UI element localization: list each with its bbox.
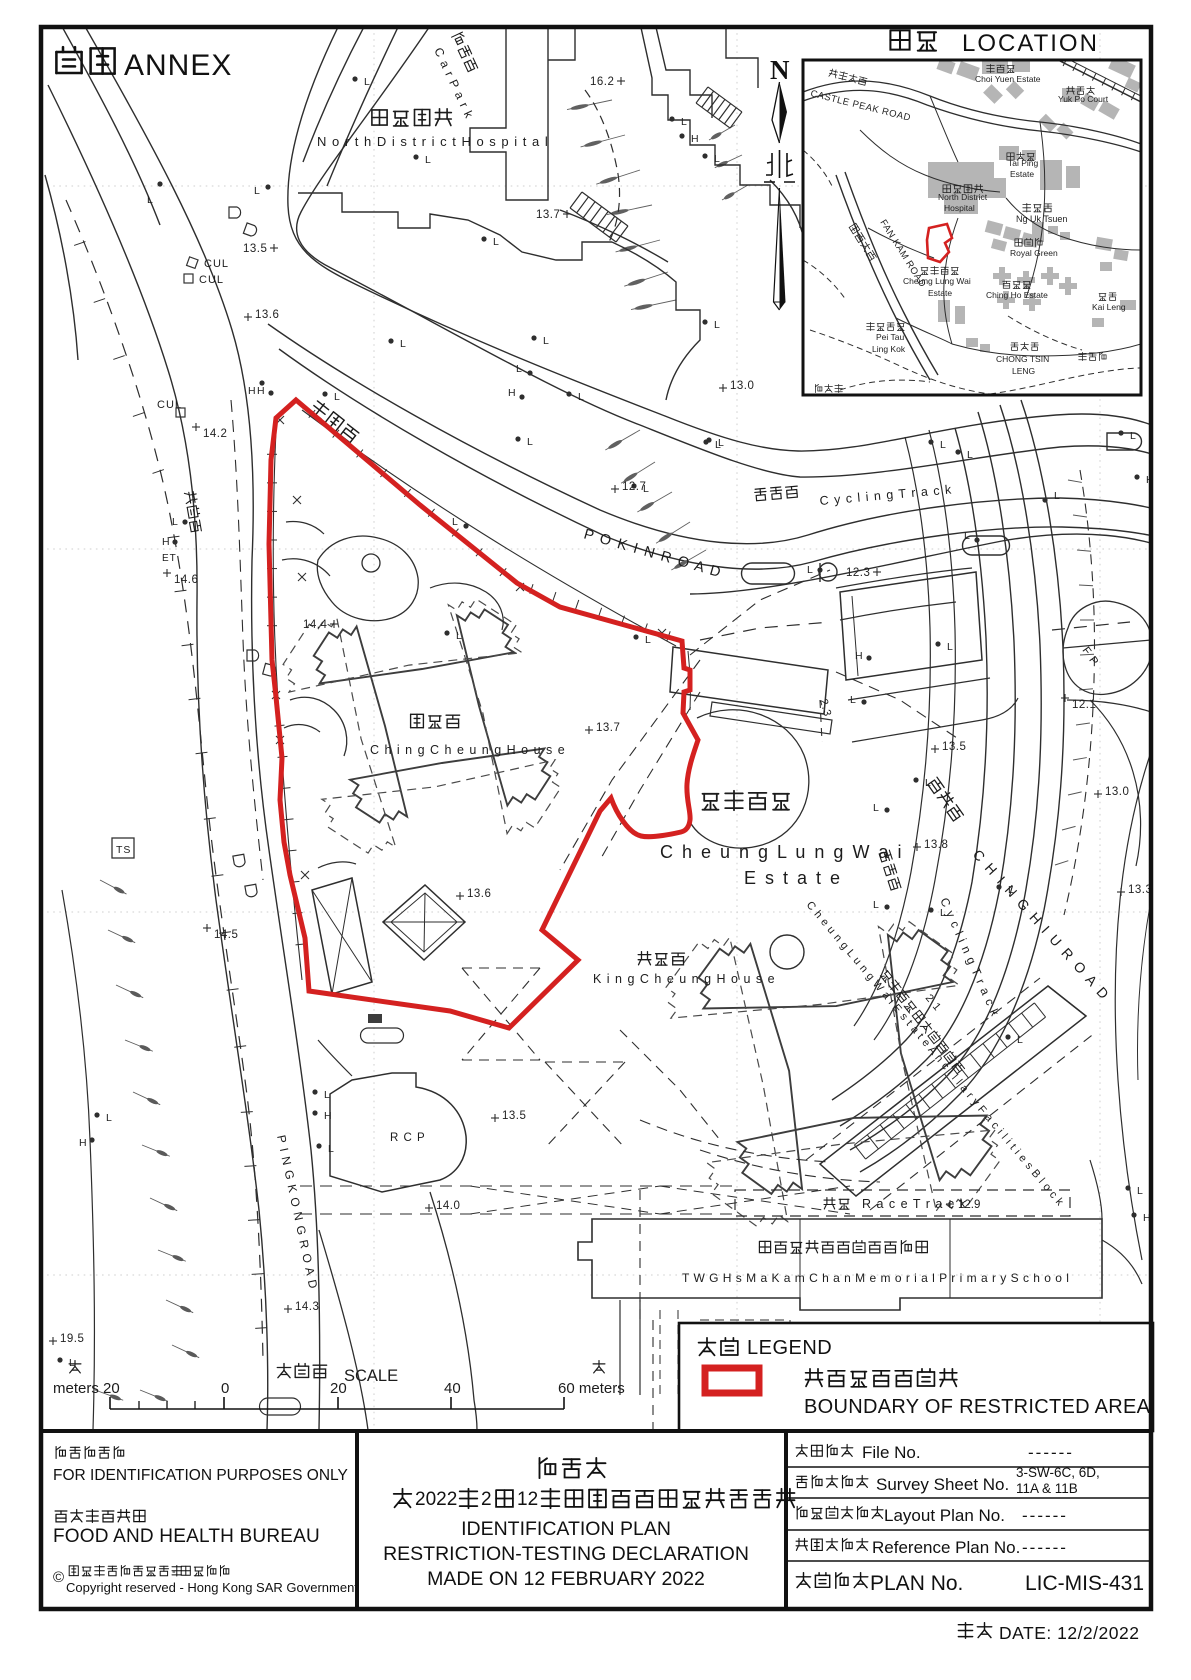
svg-text:C h e u n g L u n g W a i: C h e u n g L u n g W a i	[660, 842, 903, 862]
svg-text:20: 20	[330, 1380, 347, 1397]
svg-text:12.7: 12.7	[622, 481, 646, 493]
svg-text:13.8: 13.8	[924, 839, 948, 851]
svg-text:Royal Green: Royal Green	[1010, 248, 1058, 258]
svg-text:L: L	[516, 363, 522, 375]
svg-text:------: ------	[1022, 1538, 1068, 1557]
svg-text:T W G H s M a K a m C h: T W G H s M a K a m C h a n M e m o r i …	[682, 1271, 1069, 1285]
svg-text:60 meters: 60 meters	[558, 1380, 625, 1397]
svg-text:Yuk Po Court: Yuk Po Court	[1058, 94, 1109, 104]
svg-text:13.7: 13.7	[536, 209, 560, 221]
svg-text:13.0: 13.0	[730, 380, 754, 392]
svg-text:12.3: 12.3	[846, 567, 870, 579]
svg-text:H: H	[79, 1137, 87, 1149]
svg-text:L: L	[681, 116, 687, 128]
svg-text:DATE: 12/2/2022: DATE: 12/2/2022	[999, 1623, 1139, 1643]
svg-text:14.2: 14.2	[203, 428, 227, 440]
svg-text:L: L	[328, 1143, 334, 1155]
svg-text:LEGEND: LEGEND	[747, 1337, 832, 1359]
svg-text:H: H	[248, 385, 256, 397]
svg-text:L: L	[714, 153, 720, 165]
svg-text:FOOD AND HEALTH BUREAU: FOOD AND HEALTH BUREAU	[53, 1526, 320, 1547]
svg-text:L: L	[364, 76, 370, 88]
svg-text:CHONG TSIN: CHONG TSIN	[996, 354, 1049, 364]
svg-text:16.2: 16.2	[590, 76, 614, 88]
svg-text:L: L	[147, 194, 153, 206]
svg-text:BOUNDARY OF RESTRICTED AREA: BOUNDARY OF RESTRICTED AREA	[804, 1396, 1151, 1418]
svg-text:0: 0	[221, 1380, 229, 1397]
svg-text:-: -	[172, 1566, 176, 1578]
svg-text:13.3: 13.3	[1128, 884, 1152, 896]
svg-text:CUL: CUL	[157, 399, 182, 411]
svg-text:Estate: Estate	[928, 288, 952, 298]
svg-text:13.5: 13.5	[942, 741, 966, 753]
svg-text:L: L	[947, 641, 953, 653]
svg-text:13.5: 13.5	[243, 243, 267, 255]
svg-text:L: L	[543, 335, 549, 347]
svg-text:IDENTIFICATION PLAN: IDENTIFICATION PLAN	[461, 1518, 671, 1540]
svg-text:Tai Ping: Tai Ping	[1008, 158, 1039, 168]
svg-text:L: L	[873, 802, 879, 814]
svg-text:Choi Yuen Estate: Choi Yuen Estate	[975, 74, 1041, 84]
svg-text:L: L	[254, 185, 260, 197]
svg-text:H: H	[691, 133, 699, 145]
svg-text:L: L	[425, 154, 431, 166]
svg-text:40: 40	[444, 1380, 461, 1397]
svg-text:Ching Ho Estate: Ching Ho Estate	[986, 290, 1048, 300]
svg-text:FOR IDENTIFICATION PURPOSES ON: FOR IDENTIFICATION PURPOSES ONLY	[53, 1467, 348, 1484]
svg-text:©: ©	[53, 1569, 64, 1586]
svg-text:Layout Plan No.: Layout Plan No.	[884, 1506, 1005, 1525]
svg-text:L: L	[715, 439, 721, 451]
svg-text:L: L	[1137, 1185, 1143, 1197]
svg-text:12: 12	[517, 1489, 538, 1510]
svg-text:H: H	[855, 650, 863, 662]
svg-text:L: L	[645, 634, 651, 646]
svg-text:2022: 2022	[415, 1489, 457, 1510]
svg-text:CUL: CUL	[199, 274, 224, 286]
svg-text:N o r t h D i s t r i c t: N o r t h D i s t r i c t H o s p i t a …	[317, 134, 549, 149]
svg-text:R C P: R C P	[390, 1132, 426, 1144]
svg-text:N: N	[770, 55, 790, 85]
svg-text:12.1: 12.1	[1072, 699, 1096, 711]
svg-text:Copyright reserved - Hong Kong: Copyright reserved - Hong Kong SAR Gover…	[66, 1580, 358, 1595]
svg-text:L: L	[714, 319, 720, 331]
svg-text:MADE ON 12 FEBRUARY 2022: MADE ON 12 FEBRUARY 2022	[427, 1568, 705, 1590]
svg-text:H: H	[508, 387, 516, 399]
svg-text:L: L	[807, 564, 813, 576]
svg-text:Hospital: Hospital	[944, 203, 975, 213]
svg-text:L: L	[1017, 1034, 1023, 1046]
svg-text:L: L	[578, 391, 584, 403]
svg-text:13.6: 13.6	[255, 309, 279, 321]
svg-text:H: H	[324, 1110, 332, 1122]
svg-text:Reference Plan No.: Reference Plan No.	[872, 1538, 1020, 1557]
svg-text:SCALE: SCALE	[344, 1367, 398, 1385]
svg-text:------: ------	[1028, 1443, 1074, 1462]
svg-text:ANNEX: ANNEX	[124, 49, 232, 82]
svg-text:12.9: 12.9	[958, 1199, 980, 1211]
svg-text:Estate: Estate	[1010, 169, 1034, 179]
svg-text:E s t a t e: E s t a t e	[744, 868, 842, 888]
svg-text:L: L	[493, 236, 499, 248]
svg-text:13.6: 13.6	[467, 888, 491, 900]
svg-text:H: H	[162, 536, 170, 548]
svg-text:L: L	[172, 516, 178, 528]
svg-text:LOCATION: LOCATION	[962, 30, 1099, 57]
svg-text:L: L	[106, 1112, 112, 1124]
svg-text:LIC-MIS-431: LIC-MIS-431	[1025, 1572, 1144, 1595]
svg-text:L: L	[334, 391, 340, 403]
svg-text:14.4: 14.4	[303, 619, 327, 631]
svg-text:L: L	[967, 449, 973, 461]
svg-text:L: L	[964, 530, 970, 542]
svg-text:TS: TS	[116, 844, 131, 856]
svg-text:PLAN No.: PLAN No.	[870, 1572, 963, 1595]
svg-text:11A & 11B: 11A & 11B	[1016, 1481, 1078, 1496]
svg-text:L: L	[527, 436, 533, 448]
svg-text:H: H	[257, 385, 265, 397]
svg-text:13.7: 13.7	[596, 722, 620, 734]
svg-text:14.6: 14.6	[174, 574, 198, 586]
svg-text:14.3: 14.3	[295, 1301, 319, 1313]
svg-text:14.5: 14.5	[214, 929, 238, 941]
svg-text:L: L	[456, 630, 462, 642]
svg-text:Ling Kok: Ling Kok	[872, 344, 906, 354]
svg-text:L: L	[850, 694, 856, 706]
svg-text:RESTRICTION-TESTING DECLARATIO: RESTRICTION-TESTING DECLARATION	[383, 1543, 749, 1565]
svg-text:File No.: File No.	[862, 1443, 921, 1462]
svg-text:Pei Tau: Pei Tau	[876, 332, 904, 342]
svg-text:Survey Sheet No.: Survey Sheet No.	[876, 1475, 1009, 1494]
svg-text:3-SW-6C, 6D,: 3-SW-6C, 6D,	[1016, 1465, 1100, 1480]
svg-text:L: L	[1130, 430, 1136, 442]
svg-text:K i n g C h e u n g H o u: K i n g C h e u n g H o u s e	[593, 972, 776, 986]
svg-text:13.5: 13.5	[502, 1110, 526, 1122]
svg-text:CUL: CUL	[204, 258, 229, 270]
svg-text:14.0: 14.0	[436, 1200, 460, 1212]
svg-text:2: 2	[481, 1489, 492, 1510]
svg-text:L: L	[873, 899, 879, 911]
svg-text:Ng Uk Tsuen: Ng Uk Tsuen	[1016, 214, 1067, 224]
svg-text:LENG: LENG	[1012, 366, 1035, 376]
svg-text:19.5: 19.5	[60, 1333, 84, 1345]
svg-text:North District: North District	[938, 192, 988, 202]
svg-text:------: ------	[1022, 1506, 1068, 1525]
svg-text:L: L	[940, 439, 946, 451]
svg-text:L: L	[400, 338, 406, 350]
svg-text:13.0: 13.0	[1105, 786, 1129, 798]
svg-text:C h i n g C h e u n g H o: C h i n g C h e u n g H o u s e	[370, 743, 566, 757]
svg-text:L: L	[1054, 490, 1060, 502]
svg-text:ET: ET	[162, 553, 177, 564]
svg-text:L: L	[452, 516, 458, 528]
svg-text:L: L	[324, 1089, 330, 1101]
svg-text:meters 20: meters 20	[53, 1380, 120, 1397]
svg-text:Kai Leng: Kai Leng	[1092, 302, 1126, 312]
